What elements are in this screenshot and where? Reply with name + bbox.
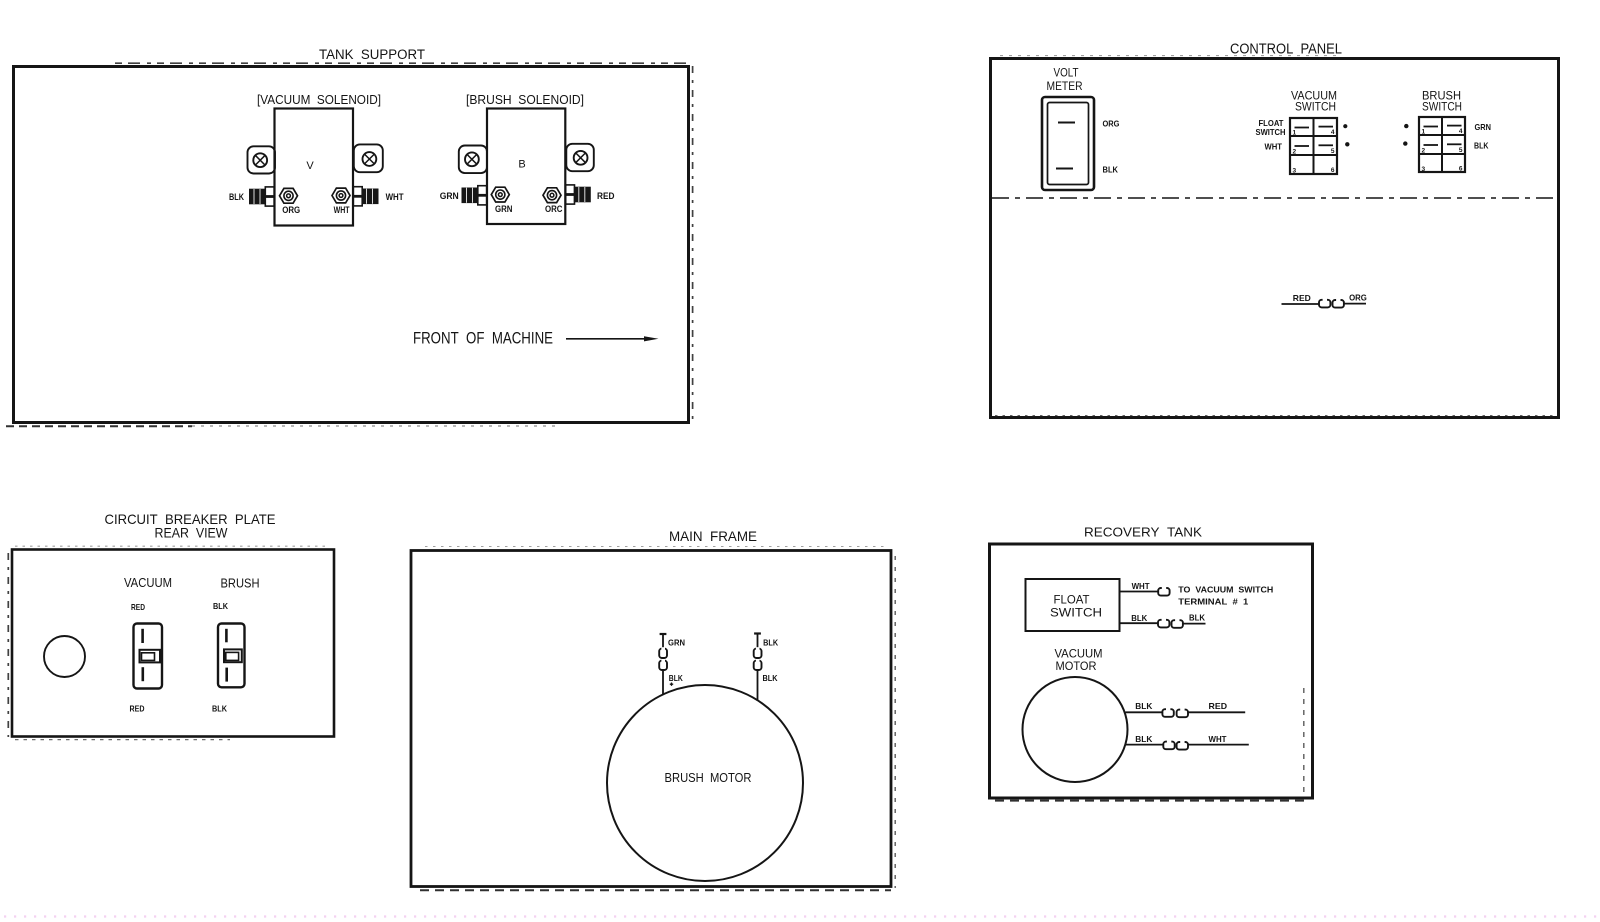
svg-text:5: 5: [1331, 148, 1335, 155]
svg-text:BLK: BLK: [669, 673, 684, 683]
svg-text:BLK: BLK: [763, 638, 779, 648]
svg-text:MOTOR: MOTOR: [1056, 661, 1097, 673]
svg-text:V: V: [306, 160, 314, 172]
svg-text:SWITCH: SWITCH: [1422, 102, 1462, 114]
svg-text:BLK: BLK: [213, 601, 229, 611]
svg-text:ORG: ORG: [282, 205, 300, 215]
svg-text:BLK: BLK: [1135, 734, 1153, 744]
svg-text:FLOAT: FLOAT: [1054, 595, 1090, 607]
svg-text:RED: RED: [1209, 701, 1228, 711]
svg-text:GRN: GRN: [1475, 122, 1492, 132]
svg-text:WHT: WHT: [386, 192, 404, 202]
svg-text:BRUSH MOTOR: BRUSH MOTOR: [665, 770, 752, 785]
svg-text:VOLT: VOLT: [1054, 68, 1079, 80]
svg-text:4: 4: [1331, 129, 1335, 136]
svg-text:[VACUUM SOLENOID]: [VACUUM SOLENOID]: [257, 93, 381, 107]
svg-text:5: 5: [1459, 147, 1463, 154]
svg-text:WHT: WHT: [1132, 581, 1151, 591]
svg-text:RED: RED: [130, 704, 145, 714]
svg-text:VACUUM: VACUUM: [124, 575, 172, 590]
svg-text:[BRUSH SOLENOID]: [BRUSH SOLENOID]: [466, 93, 584, 107]
svg-text:WHT: WHT: [334, 205, 350, 215]
svg-text:1: 1: [1422, 129, 1426, 136]
svg-text:BLK: BLK: [1131, 613, 1148, 623]
svg-text:3: 3: [1293, 168, 1297, 175]
svg-text:3: 3: [1422, 166, 1426, 173]
svg-text:2: 2: [1293, 149, 1297, 156]
svg-text:GRN: GRN: [495, 204, 513, 214]
svg-text:BRUSH: BRUSH: [221, 576, 260, 591]
svg-text:1: 1: [1293, 130, 1297, 137]
svg-text:6: 6: [1459, 166, 1463, 173]
svg-text:ORG: ORG: [1103, 119, 1120, 129]
svg-text:MAIN FRAME: MAIN FRAME: [669, 528, 757, 544]
svg-text:RED: RED: [1293, 293, 1311, 303]
svg-text:BLK: BLK: [212, 704, 228, 714]
svg-text:6: 6: [1331, 167, 1335, 174]
svg-text:RED: RED: [597, 191, 615, 201]
svg-text:BLK: BLK: [1474, 141, 1489, 151]
svg-text:TO VACUUM SWITCH: TO VACUUM SWITCH: [1178, 585, 1273, 595]
svg-text:ORG: ORG: [1349, 293, 1367, 303]
svg-text:GRN: GRN: [668, 638, 685, 648]
svg-text:ORC: ORC: [545, 204, 563, 214]
svg-text:SWITCH: SWITCH: [1256, 127, 1286, 137]
svg-text:VACUUM: VACUUM: [1055, 649, 1103, 661]
svg-text:RED: RED: [131, 602, 145, 612]
svg-text:4: 4: [1459, 128, 1463, 135]
svg-text:CONTROL PANEL: CONTROL PANEL: [1230, 41, 1342, 58]
svg-text:TANK SUPPORT: TANK SUPPORT: [319, 47, 425, 62]
svg-text:2: 2: [1422, 148, 1426, 155]
svg-text:WHT: WHT: [1265, 142, 1283, 152]
svg-text:TERMINAL # 1: TERMINAL # 1: [1178, 597, 1248, 607]
svg-text:BLK: BLK: [1135, 701, 1153, 711]
svg-text:SWITCH: SWITCH: [1050, 608, 1102, 620]
svg-text:SWITCH: SWITCH: [1295, 102, 1336, 114]
svg-text:BLK: BLK: [1189, 613, 1206, 623]
svg-text:BLK: BLK: [763, 673, 779, 683]
svg-text:BLK: BLK: [229, 192, 244, 202]
svg-text:REAR VIEW: REAR VIEW: [155, 525, 229, 541]
svg-text:METER: METER: [1047, 81, 1083, 93]
svg-text:WHT: WHT: [1209, 734, 1228, 744]
svg-text:B: B: [518, 159, 525, 171]
svg-text:GRN: GRN: [440, 191, 459, 201]
svg-text:RECOVERY TANK: RECOVERY TANK: [1084, 525, 1202, 540]
svg-text:FRONT OF MACHINE: FRONT OF MACHINE: [413, 330, 553, 348]
svg-text:BLK: BLK: [1103, 165, 1119, 175]
